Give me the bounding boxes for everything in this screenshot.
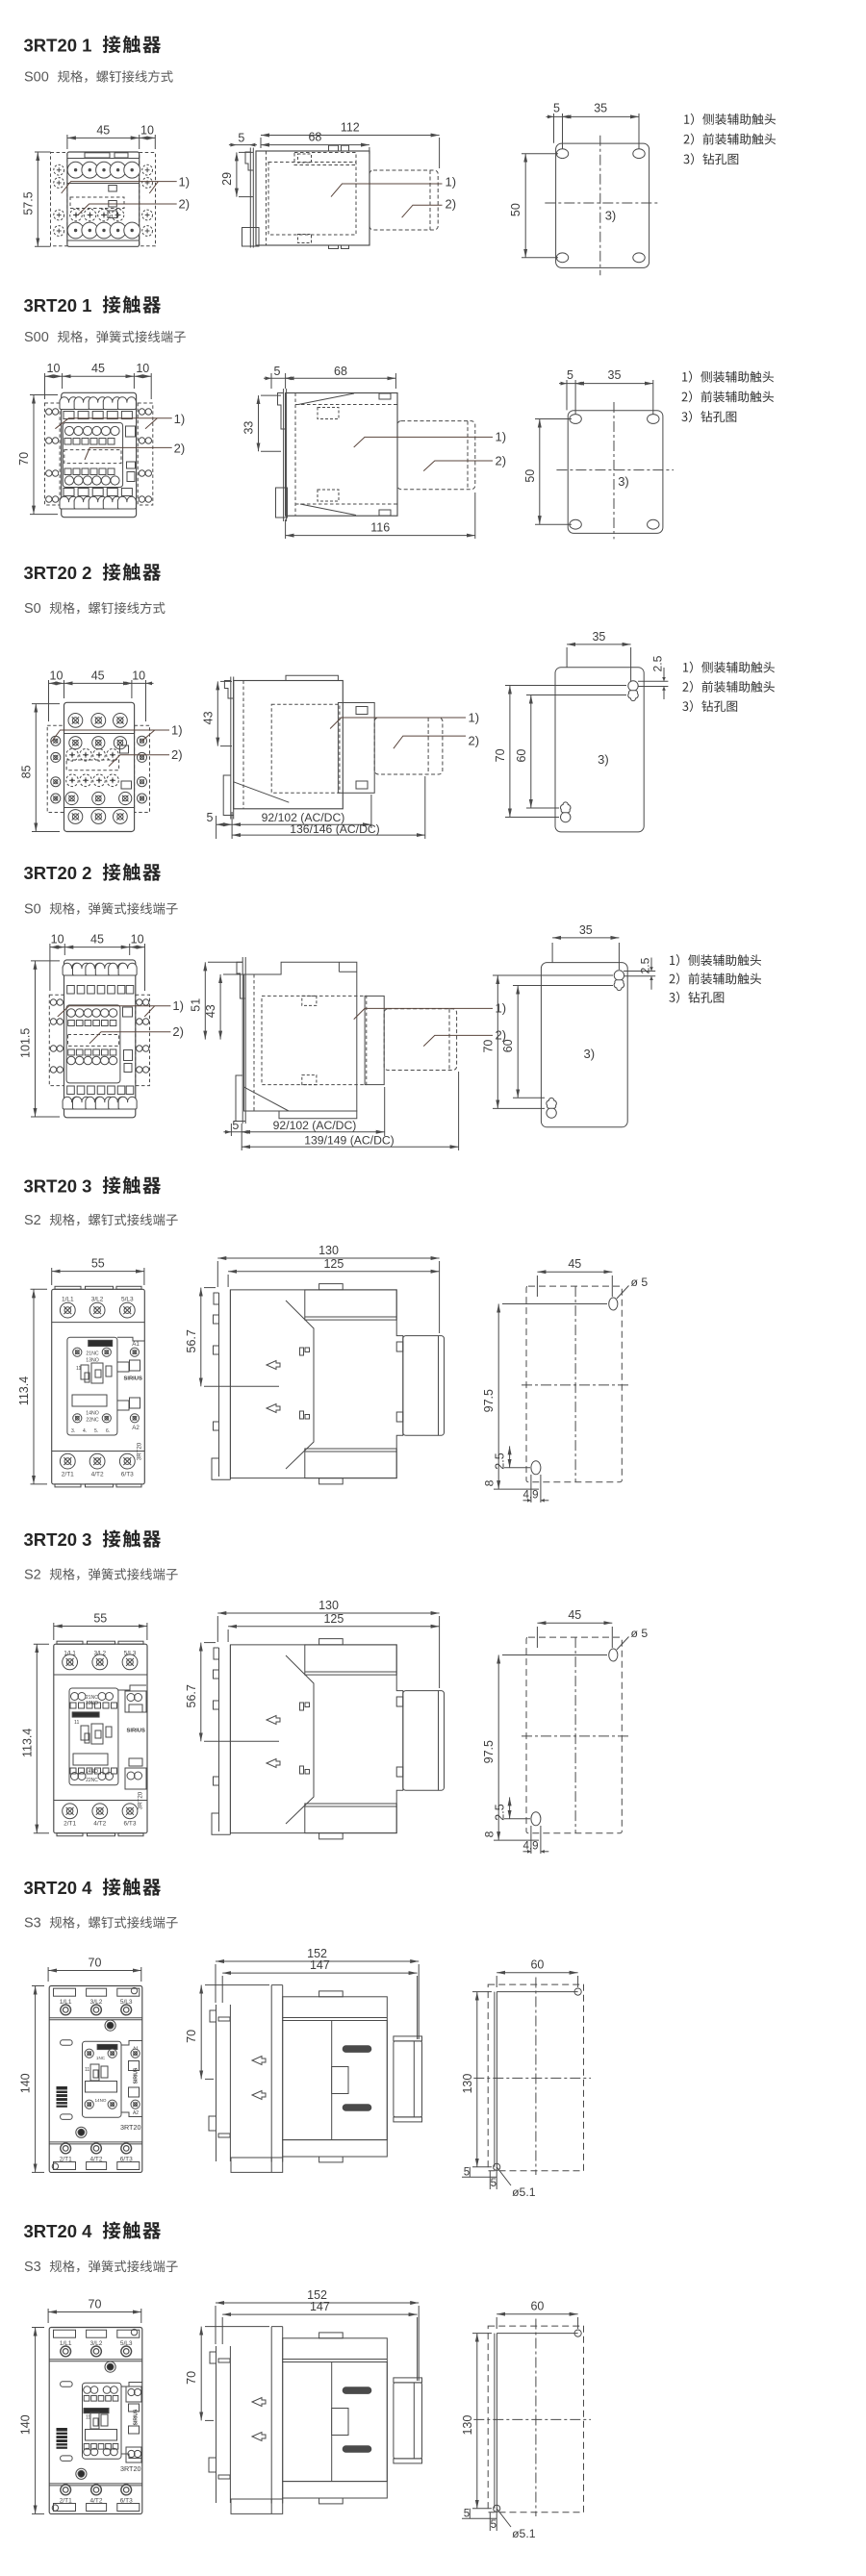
svg-text:SIRIUS: SIRIUS: [134, 2409, 140, 2425]
svg-text:130: 130: [318, 1244, 339, 1257]
svg-text:45: 45: [91, 669, 105, 682]
svg-text:101.5: 101.5: [19, 1028, 33, 1058]
svg-text:ø5.1: ø5.1: [512, 2527, 536, 2540]
svg-text:45: 45: [90, 933, 104, 947]
svg-text:29: 29: [220, 172, 234, 186]
svg-text:2.5: 2.5: [639, 957, 652, 973]
svg-text:ø5.1: ø5.1: [512, 2185, 536, 2199]
svg-text:11: 11: [85, 2067, 89, 2073]
svg-text:S0: S0: [24, 902, 41, 918]
svg-text:1): 1): [179, 174, 191, 189]
svg-text:45: 45: [568, 1257, 581, 1271]
svg-text:10: 10: [132, 669, 145, 682]
svg-text:3RT20 4: 3RT20 4: [24, 2221, 93, 2241]
svg-text:10: 10: [50, 669, 64, 682]
svg-text:A1: A1: [132, 1341, 140, 1348]
svg-text:70: 70: [17, 452, 31, 466]
svg-text:50: 50: [523, 469, 537, 483]
svg-text:S3: S3: [24, 1916, 41, 1932]
svg-text:6.: 6.: [106, 1428, 110, 1434]
svg-text:5: 5: [464, 2509, 470, 2520]
svg-text:112: 112: [341, 121, 360, 135]
svg-text:22NC: 22NC: [86, 1778, 98, 1783]
svg-text:10: 10: [131, 933, 144, 947]
svg-text:22NC: 22NC: [86, 1417, 99, 1423]
svg-text:S2: S2: [24, 1213, 41, 1228]
svg-text:8: 8: [483, 1831, 497, 1837]
svg-text:14NO: 14NO: [86, 1769, 98, 1775]
svg-text:3): 3): [584, 1047, 596, 1061]
svg-text:S0: S0: [24, 601, 41, 617]
svg-text:ø 5: ø 5: [631, 1275, 649, 1289]
svg-text:147: 147: [310, 2300, 330, 2313]
svg-text:70: 70: [185, 2371, 198, 2385]
svg-text:4/T2: 4/T2: [89, 2498, 102, 2505]
svg-text:125: 125: [323, 1612, 344, 1626]
svg-text:55: 55: [93, 1612, 107, 1626]
svg-text:68: 68: [308, 131, 321, 144]
svg-text:70: 70: [481, 1040, 495, 1053]
svg-text:5: 5: [491, 2519, 497, 2531]
svg-text:56.7: 56.7: [185, 1329, 198, 1352]
svg-text:97.5: 97.5: [482, 1740, 496, 1763]
svg-text:45: 45: [568, 1608, 581, 1622]
svg-text:116: 116: [370, 521, 390, 535]
svg-text:A2: A2: [132, 1425, 140, 1431]
svg-text:2/T1: 2/T1: [60, 2498, 72, 2505]
svg-text:113.4: 113.4: [17, 1376, 31, 1405]
svg-text:70: 70: [494, 748, 507, 762]
svg-text:1): 1): [496, 1001, 507, 1016]
svg-text:5: 5: [238, 131, 244, 144]
svg-text:33: 33: [242, 421, 256, 435]
svg-text:3): 3): [605, 209, 617, 223]
svg-text:139/149 (AC/DC): 139/149 (AC/DC): [304, 1134, 394, 1148]
svg-text:1): 1): [469, 710, 480, 724]
svg-text:45: 45: [91, 362, 105, 375]
svg-text:97.5: 97.5: [482, 1389, 496, 1412]
svg-text:1): 1): [496, 430, 507, 444]
svg-text:60: 60: [530, 2300, 544, 2313]
svg-text:1/L1: 1/L1: [62, 1297, 74, 1303]
svg-text:5: 5: [567, 368, 573, 382]
svg-text:10: 10: [136, 362, 149, 375]
svg-text:5/L3: 5/L3: [121, 1297, 134, 1303]
svg-text:A2: A2: [133, 2110, 139, 2116]
svg-text:5: 5: [553, 102, 560, 115]
svg-text:8: 8: [483, 1479, 497, 1486]
svg-text:1): 1): [174, 412, 186, 426]
svg-text:S00: S00: [24, 330, 49, 345]
svg-text:85: 85: [19, 765, 33, 778]
svg-text:5: 5: [232, 1119, 239, 1132]
svg-text:14NO: 14NO: [86, 1411, 99, 1417]
svg-text:6/T3: 6/T3: [121, 1472, 134, 1478]
svg-text:2/T1: 2/T1: [64, 1821, 76, 1828]
svg-text:5: 5: [207, 811, 214, 824]
svg-text:4.9: 4.9: [523, 1841, 539, 1853]
svg-text:2): 2): [496, 454, 507, 468]
svg-text:92/102 (AC/DC): 92/102 (AC/DC): [273, 1119, 357, 1132]
svg-text:5: 5: [464, 2167, 470, 2179]
svg-text:140: 140: [19, 2073, 33, 2093]
svg-text:2/T1: 2/T1: [62, 1472, 74, 1478]
svg-text:51: 51: [189, 998, 202, 1012]
svg-text:50: 50: [509, 203, 522, 216]
svg-text:1): 1): [446, 174, 457, 189]
svg-text:21NC: 21NC: [86, 1351, 99, 1357]
svg-text:2.5: 2.5: [494, 1452, 507, 1469]
svg-text:1): 1): [171, 723, 183, 738]
svg-text:35: 35: [608, 368, 622, 382]
svg-text:55: 55: [91, 1257, 105, 1271]
svg-text:SIRIUS: SIRIUS: [127, 1729, 145, 1734]
svg-text:2.5: 2.5: [651, 655, 665, 671]
svg-text:2): 2): [172, 1024, 184, 1039]
svg-text:70: 70: [89, 1957, 102, 1970]
svg-text:2/T1: 2/T1: [60, 2157, 72, 2163]
svg-text:4/T2: 4/T2: [91, 1472, 104, 1478]
svg-text:5.: 5.: [94, 1428, 98, 1434]
svg-text:10: 10: [51, 933, 64, 947]
svg-text:6/T3: 6/T3: [120, 2157, 133, 2163]
svg-text:140: 140: [19, 2414, 33, 2435]
svg-text:60: 60: [530, 1958, 544, 1972]
svg-text:14NO: 14NO: [94, 2098, 106, 2103]
svg-text:3): 3): [618, 474, 629, 489]
svg-text:4/T2: 4/T2: [89, 2157, 102, 2163]
svg-text:125: 125: [323, 1257, 344, 1271]
svg-text:3): 3): [598, 752, 609, 767]
svg-text:S3: S3: [24, 2260, 41, 2275]
svg-text:3RT20 3: 3RT20 3: [24, 1176, 92, 1197]
svg-text:35: 35: [579, 923, 593, 937]
svg-text:2): 2): [174, 442, 186, 456]
svg-text:3RT20 4: 3RT20 4: [24, 1878, 93, 1898]
svg-text:10: 10: [140, 123, 154, 137]
svg-text:3RT20 3: 3RT20 3: [24, 1529, 92, 1550]
svg-text:130: 130: [318, 1599, 339, 1612]
svg-text:35: 35: [594, 102, 607, 115]
svg-text:ø 5: ø 5: [631, 1627, 649, 1640]
svg-text:113.4: 113.4: [20, 1729, 34, 1757]
svg-text:56.7: 56.7: [185, 1684, 198, 1707]
svg-text:3RT20 2: 3RT20 2: [24, 863, 92, 883]
svg-text:3RT20 1: 3RT20 1: [24, 36, 92, 56]
svg-text:136/146 (AC/DC): 136/146 (AC/DC): [290, 822, 379, 836]
svg-text:3RT20: 3RT20: [120, 2123, 140, 2132]
svg-text:1): 1): [172, 998, 184, 1013]
svg-text:2.5: 2.5: [494, 1804, 507, 1820]
svg-text:68: 68: [334, 365, 347, 378]
svg-text:3RT20 2: 3RT20 2: [24, 563, 92, 583]
svg-text:1NC: 1NC: [96, 2056, 106, 2060]
svg-text:45: 45: [96, 123, 110, 137]
svg-text:11: 11: [74, 1720, 79, 1726]
svg-text:3RT20 1: 3RT20 1: [24, 295, 92, 316]
svg-text:SIRIUS: SIRIUS: [134, 2067, 140, 2084]
svg-text:S2: S2: [24, 1568, 41, 1583]
svg-text:2): 2): [179, 197, 191, 212]
svg-text:57.5: 57.5: [21, 191, 35, 215]
svg-text:4.9: 4.9: [523, 1490, 539, 1502]
svg-text:5: 5: [491, 2178, 497, 2189]
svg-text:130: 130: [461, 2415, 474, 2436]
svg-text:60: 60: [501, 1039, 515, 1052]
svg-text:43: 43: [204, 1004, 217, 1018]
svg-text:3RT20: 3RT20: [120, 2464, 140, 2473]
svg-text:2): 2): [446, 197, 457, 212]
svg-text:2): 2): [469, 733, 480, 747]
svg-text:10: 10: [47, 362, 61, 375]
svg-text:5: 5: [274, 365, 281, 378]
svg-text:35: 35: [592, 630, 605, 644]
svg-text:43: 43: [201, 711, 215, 724]
svg-text:147: 147: [310, 1958, 330, 1972]
svg-text:3/L2: 3/L2: [91, 1297, 104, 1303]
svg-text:6/T3: 6/T3: [120, 2498, 133, 2505]
svg-text:6/T3: 6/T3: [123, 1821, 136, 1828]
svg-text:60: 60: [515, 749, 528, 763]
svg-text:S00: S00: [24, 70, 49, 86]
svg-text:SIRIUS: SIRIUS: [124, 1376, 142, 1381]
svg-text:70: 70: [89, 2298, 102, 2311]
svg-text:4.: 4.: [83, 1428, 87, 1434]
svg-text:2): 2): [171, 747, 183, 762]
svg-text:4/T2: 4/T2: [93, 1821, 106, 1828]
svg-text:3.: 3.: [71, 1428, 75, 1434]
svg-text:70: 70: [185, 2030, 198, 2043]
svg-text:130: 130: [461, 2074, 474, 2094]
